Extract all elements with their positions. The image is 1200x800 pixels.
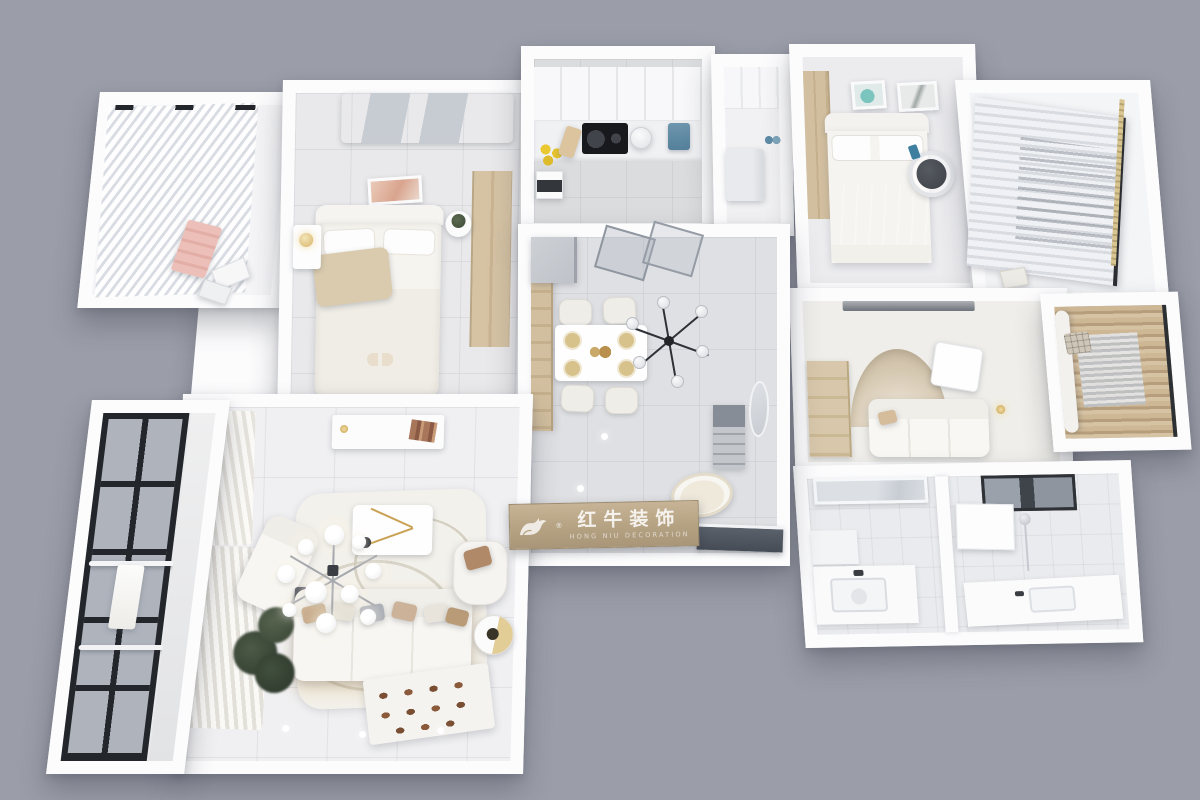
brown-books [409, 419, 438, 442]
floor-lamp-gold [996, 405, 1005, 414]
oval-mirror [748, 381, 770, 438]
upper-cabinets [534, 67, 702, 121]
room-balcony-top-left [77, 92, 305, 308]
room-living [173, 394, 533, 774]
bed2-gray-blanket [829, 185, 931, 245]
bath1-sink [830, 577, 888, 612]
bath2-faucet [1015, 591, 1024, 596]
gold-decor [340, 425, 348, 433]
tan-throw-blanket [312, 247, 393, 308]
room-study [789, 288, 1074, 475]
hall-cabinet [724, 67, 779, 109]
table-centerpiece [587, 343, 613, 361]
pillow-tan-2 [391, 601, 418, 623]
plate [563, 331, 582, 350]
study-sofa [868, 399, 990, 457]
wall-art-frame [367, 175, 422, 206]
gray-daybed [341, 93, 514, 143]
plate [563, 359, 582, 378]
bath2-mirror-panel [955, 503, 1015, 550]
gray-shoe-cabinet [531, 237, 577, 283]
round-chair-seat [916, 159, 947, 189]
dining-chandelier [623, 295, 715, 387]
nightstand-left [293, 225, 322, 269]
tv-console [332, 415, 445, 449]
room-master-bedroom [277, 80, 535, 422]
laundry-cabinet-towels [713, 405, 745, 469]
gold-side-table [473, 615, 514, 655]
chandelier-hub [327, 565, 338, 576]
blue-cups [763, 133, 781, 147]
watermark-title: 红牛装饰 [577, 509, 681, 530]
ceiling-ac-unit [842, 301, 974, 311]
dining-chair-4 [605, 387, 638, 414]
bay-bed-edge [1054, 311, 1079, 433]
dining-chair-1 [559, 299, 592, 326]
downlight [282, 725, 289, 732]
registered-mark: ® [555, 522, 562, 530]
cooktop [582, 123, 628, 154]
room-balcony-north-east [955, 80, 1170, 305]
watermark-hongniu: ® 红牛装饰 HONG NIU DECORATION [509, 500, 700, 550]
laundry-counter-dark [697, 524, 784, 553]
bed2-duvet-foot [831, 245, 932, 263]
bath2-shower-rail [1024, 519, 1030, 571]
bull-logo-icon [518, 514, 548, 539]
dining-chair-3 [560, 384, 594, 413]
sliding-glass-door-2 [642, 221, 704, 278]
study-wood-cabinet [807, 361, 852, 457]
brown-throw [463, 545, 493, 571]
decor-dot [487, 628, 499, 640]
living-chandelier [276, 525, 391, 637]
bed-pillow-right [383, 228, 436, 256]
downlight [601, 433, 608, 440]
art-frame-gray [897, 81, 939, 112]
small-oven [536, 171, 563, 199]
pillow-brown [444, 607, 469, 628]
drying-pole-2 [78, 645, 165, 650]
art-frame-teal [851, 80, 887, 110]
floor-plan-scene: ® 红牛装饰 HONG NIU DECORATION [0, 0, 1200, 800]
bath2-sink [1028, 585, 1076, 612]
bath1-faucet [853, 570, 863, 576]
chandelier-hub [664, 336, 674, 346]
room-tatami-bay [1040, 292, 1192, 452]
drying-rack-shadow [1015, 137, 1117, 253]
bay-dark-frame [1162, 305, 1178, 437]
plaid-pillow [1063, 331, 1092, 355]
cooking-pot [630, 127, 652, 149]
downlight [577, 485, 584, 492]
bath1-mirror [813, 477, 929, 505]
bathroom-divider-wall [935, 476, 959, 632]
room-bathrooms [793, 460, 1143, 648]
bed2-headboard [824, 113, 929, 133]
armchair [452, 541, 508, 605]
white-panel [930, 341, 984, 393]
blue-appliance [668, 123, 690, 150]
curtain-rail [115, 105, 276, 110]
bed-headboard [315, 205, 443, 225]
downlight [359, 731, 366, 738]
room-entry-hall [711, 54, 794, 236]
room-kitchen [521, 46, 715, 236]
watermark-subtitle: HONG NIU DECORATION [570, 531, 690, 540]
slippers [367, 353, 393, 366]
folded-towel [999, 267, 1029, 289]
wardrobe [469, 171, 512, 347]
tall-wood-cabinet [531, 259, 553, 431]
bath2-shower-head [1018, 513, 1031, 525]
bath1-ledge [811, 530, 859, 565]
fridge [726, 149, 765, 201]
